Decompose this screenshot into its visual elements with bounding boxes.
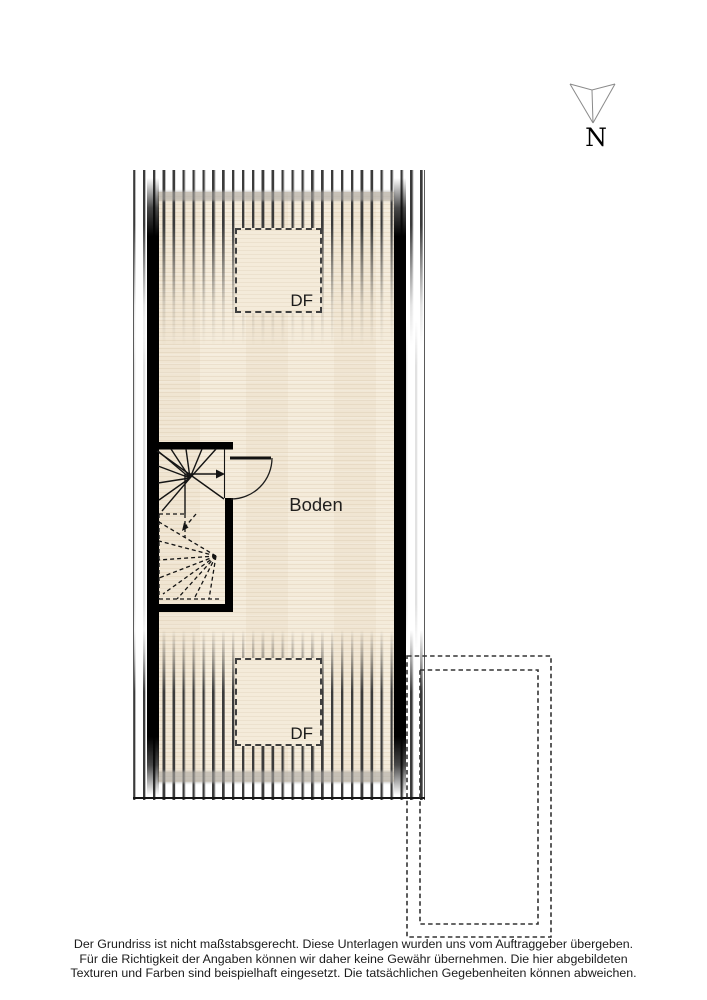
disclaimer-line: Für die Richtigkeit der Angaben können w… <box>0 952 707 967</box>
floor-plan: DF DF <box>133 170 425 800</box>
wall-right <box>394 178 406 795</box>
eaves-wall-top <box>158 191 394 201</box>
north-label: N <box>578 123 614 152</box>
wall-left <box>147 178 159 795</box>
eaves-wall-bottom <box>158 771 394 783</box>
disclaimer-line: Der Grundriss ist nicht maßstabsgerecht.… <box>0 937 707 952</box>
north-arrow-icon <box>570 84 615 123</box>
plan-edge-right <box>424 170 425 800</box>
floor-plan-page: DF DF <box>0 0 707 1000</box>
annex-dashed-outline <box>407 656 551 937</box>
plan-edge-left <box>133 170 134 800</box>
plan-edge-bottom <box>133 797 425 799</box>
roof-hatch-margin-right <box>405 320 425 650</box>
roof-window-label: DF <box>290 725 313 743</box>
disclaimer-text: Der Grundriss ist nicht maßstabsgerecht.… <box>0 937 707 981</box>
roof-window-bottom: DF <box>235 658 322 746</box>
disclaimer-line: Texturen und Farben sind beispielhaft ei… <box>0 966 707 981</box>
room-label: Boden <box>276 494 356 516</box>
roof-window-label: DF <box>290 292 313 310</box>
roof-window-top: DF <box>235 228 322 313</box>
